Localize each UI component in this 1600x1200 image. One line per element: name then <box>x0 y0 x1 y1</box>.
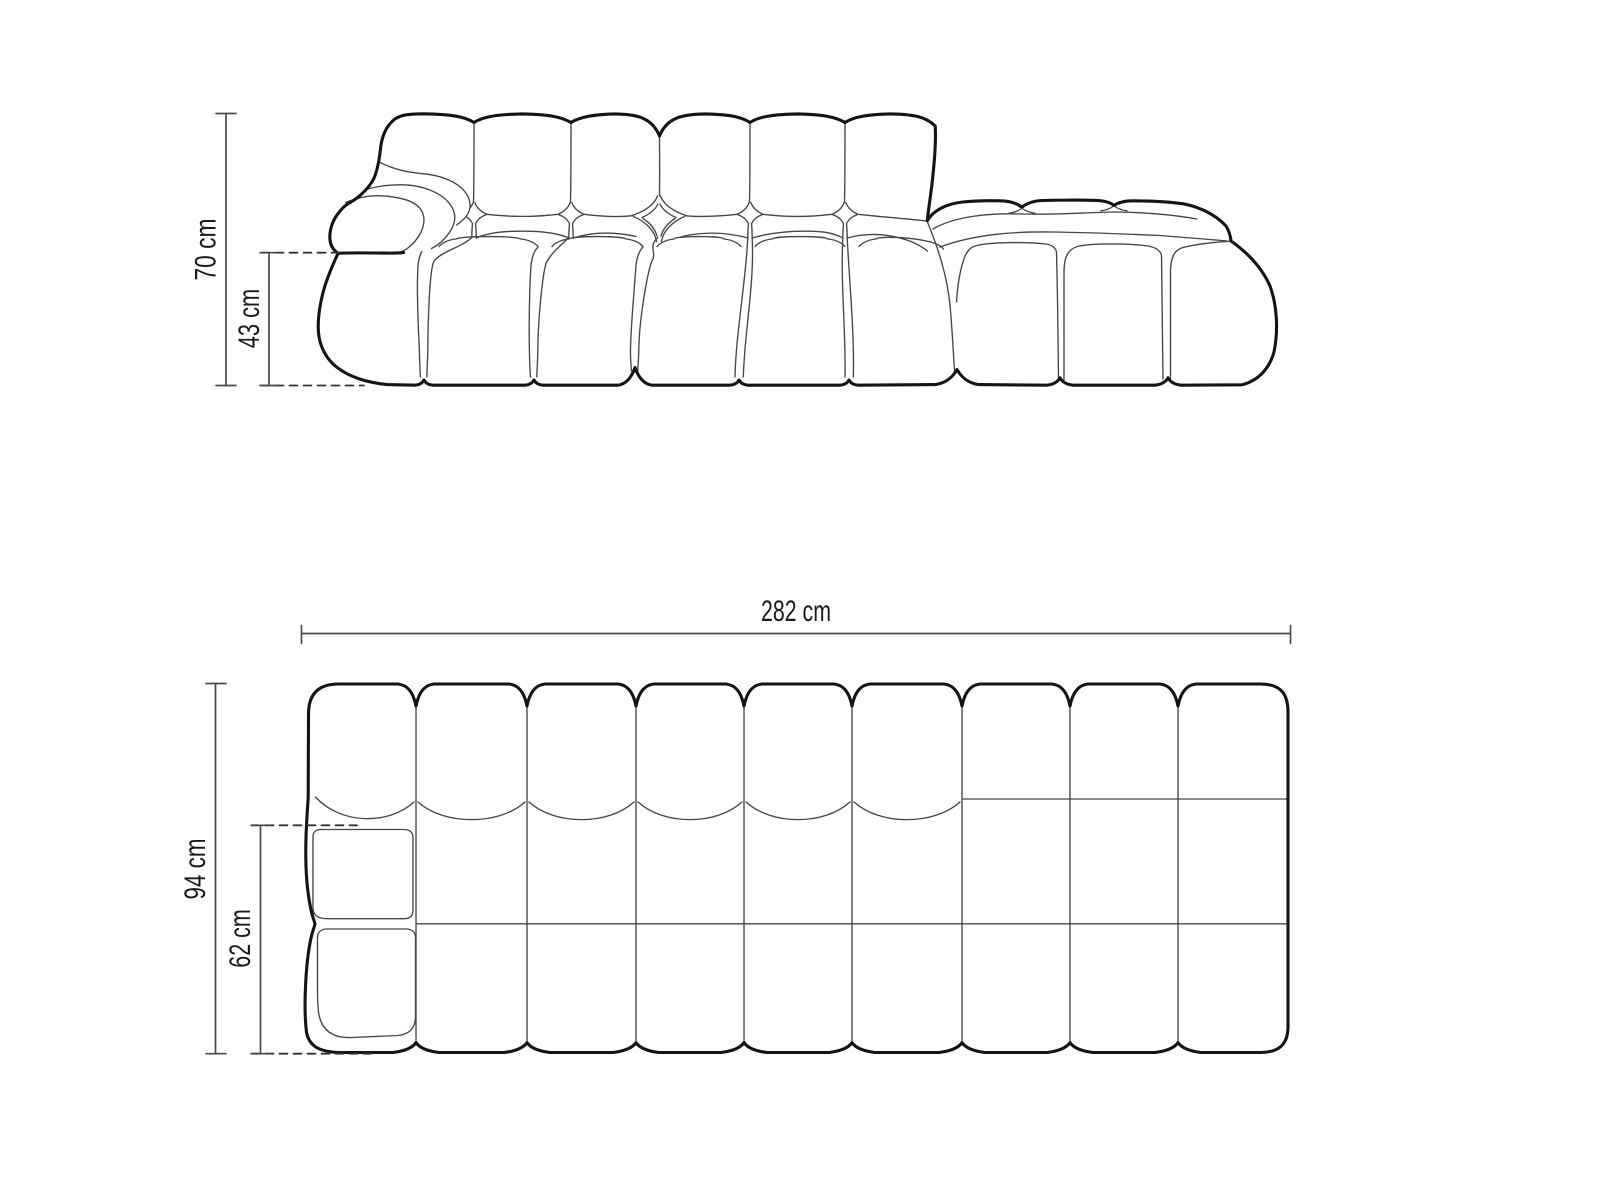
svg-text:62 cm: 62 cm <box>224 909 257 968</box>
svg-text:43 cm: 43 cm <box>233 289 266 349</box>
svg-text:70 cm: 70 cm <box>190 219 223 281</box>
svg-text:94 cm: 94 cm <box>179 839 212 900</box>
svg-text:282 cm: 282 cm <box>761 595 831 628</box>
